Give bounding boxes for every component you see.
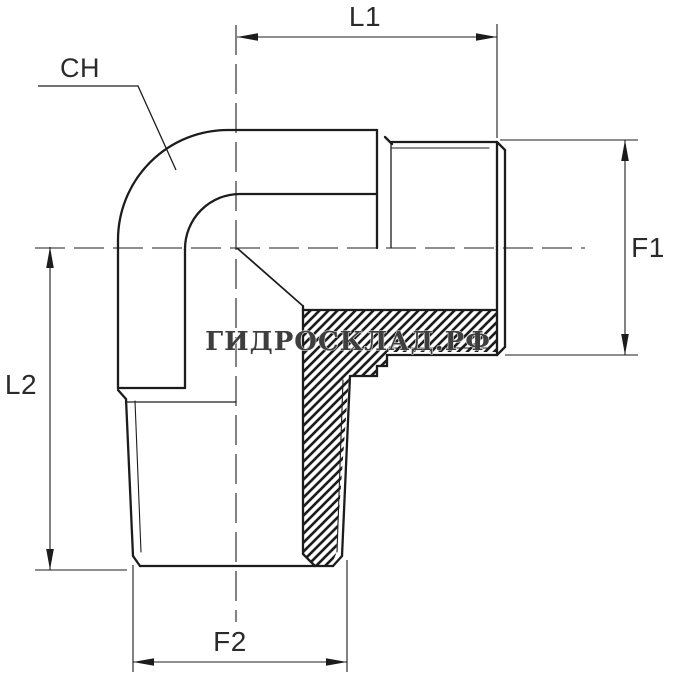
thread-crest-left <box>126 399 133 556</box>
thread-start-chamfer-left <box>118 390 126 399</box>
bore-intersection-edge <box>237 248 303 306</box>
f1-label: F1 <box>631 232 665 263</box>
dimension-l2 <box>35 247 127 570</box>
ch-label: CH <box>60 53 100 83</box>
l2-arrow-down <box>46 549 54 570</box>
f1-arrow-down <box>621 334 629 355</box>
f2-arrow-left <box>133 658 154 666</box>
l2-label: L2 <box>5 369 37 400</box>
elbow-fitting-technical-drawing: L1 F1 L2 F2 CH ГИДРОСКЛАД.РФ <box>0 0 699 676</box>
l1-arrow-right <box>476 33 497 41</box>
f1-arrow-up <box>621 140 629 161</box>
l2-arrow-up <box>46 247 54 268</box>
l1-arrow-left <box>237 33 258 41</box>
tip-chamfer-left <box>133 556 140 566</box>
f2-label: F2 <box>213 626 247 657</box>
watermark-text: ГИДРОСКЛАД.РФ <box>205 327 491 357</box>
end-chamfer-top <box>497 142 505 150</box>
f2-arrow-right <box>326 658 347 666</box>
l1-label: L1 <box>349 1 381 32</box>
dimension-l1 <box>237 24 497 138</box>
end-chamfer-bottom <box>497 347 505 355</box>
thread-root-left <box>135 401 141 552</box>
drawing-canvas: L1 F1 L2 F2 CH ГИДРОСКЛАД.РФ <box>0 0 699 676</box>
